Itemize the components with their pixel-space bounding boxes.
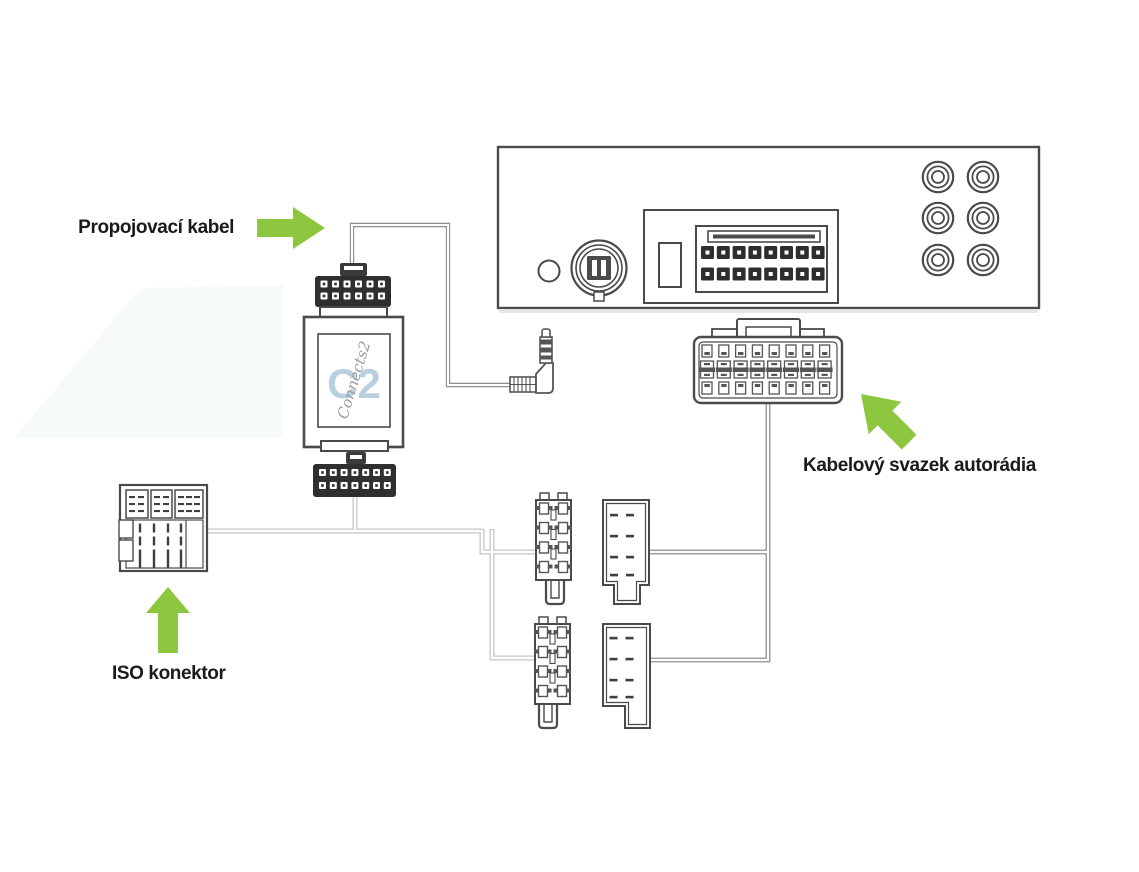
diagram-artwork: C2 Connects2 <box>0 0 1139 872</box>
adapter-box-assembly: C2 Connects2 <box>304 263 403 497</box>
label-iso-konektor: ISO konektor <box>112 663 225 685</box>
wiring-diagram: C2 Connects2 <box>0 0 1139 872</box>
reset-hole <box>539 261 560 282</box>
harness-plug-lower <box>603 624 650 728</box>
harness-plug-upper <box>603 500 649 604</box>
aux-jack-plug <box>510 329 553 393</box>
arrow-iso-konektor <box>146 587 190 653</box>
background-watermark <box>15 285 283 437</box>
iso-connector <box>119 485 207 571</box>
arrow-propojovaci-kabel <box>257 207 325 249</box>
adapter-wiring <box>207 497 536 658</box>
adapter-body: C2 Connects2 <box>304 317 403 447</box>
radio-connector-block <box>696 226 827 292</box>
arrow-kabelovy-svazek <box>861 394 917 450</box>
terminal-connector-lower <box>535 617 571 728</box>
radio-harness-connector <box>694 319 842 403</box>
label-propojovaci-kabel: Propojovací kabel <box>60 217 234 239</box>
adapter-bottom-connector <box>313 452 396 497</box>
terminal-connector-upper <box>536 493 572 604</box>
radio-rear-panel <box>498 147 1039 313</box>
adapter-top-connector <box>315 263 391 307</box>
label-kabelovy-svazek: Kabelový svazek autorádia <box>803 455 1036 477</box>
harness-wiring <box>649 402 768 660</box>
